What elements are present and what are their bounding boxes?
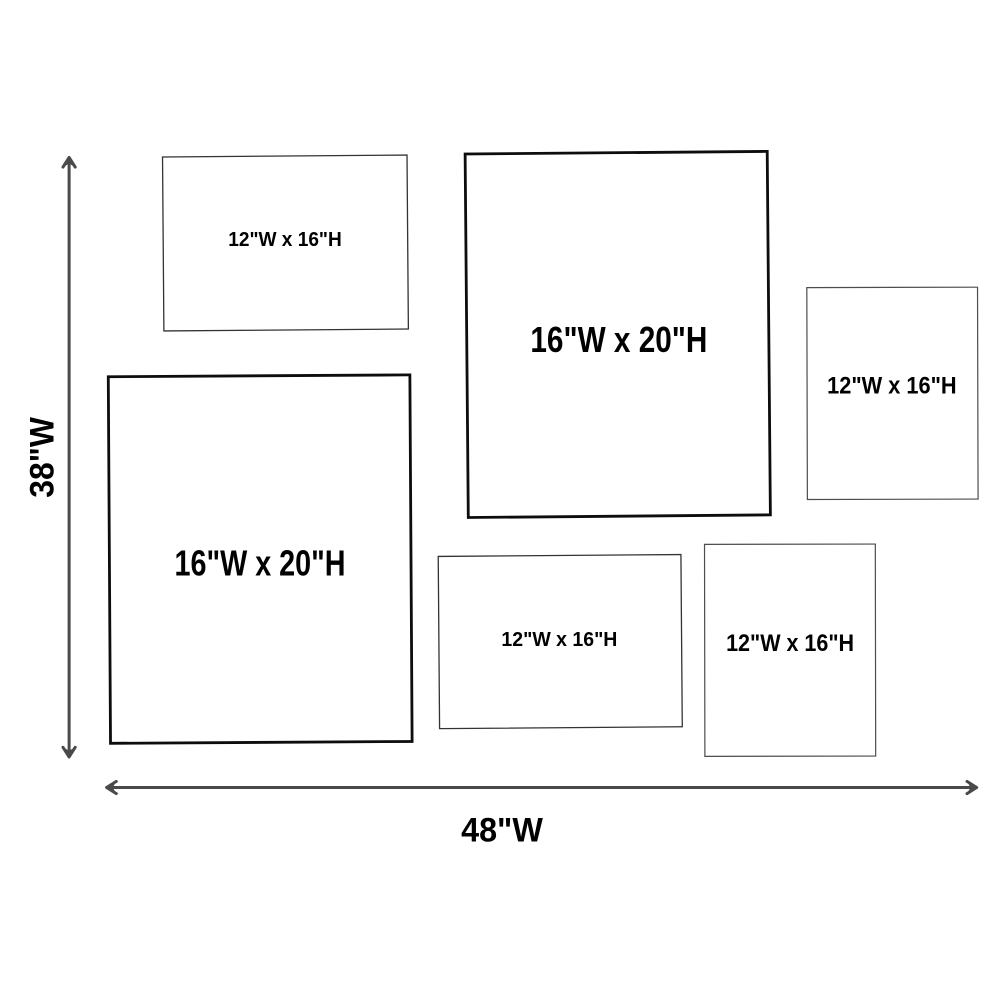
svg-text:16"W x 20"H: 16"W x 20"H (175, 543, 346, 584)
svg-text:38"W: 38"W (23, 417, 61, 498)
svg-text:12"W x 16"H: 12"W x 16"H (827, 373, 957, 400)
svg-text:12"W x 16"H: 12"W x 16"H (501, 629, 617, 651)
svg-text:12"W x 16"H: 12"W x 16"H (228, 229, 342, 251)
svg-text:48"W: 48"W (461, 812, 543, 850)
svg-text:12"W x 16"H: 12"W x 16"H (726, 630, 854, 657)
svg-text:16"W x 20"H: 16"W x 20"H (530, 319, 707, 360)
